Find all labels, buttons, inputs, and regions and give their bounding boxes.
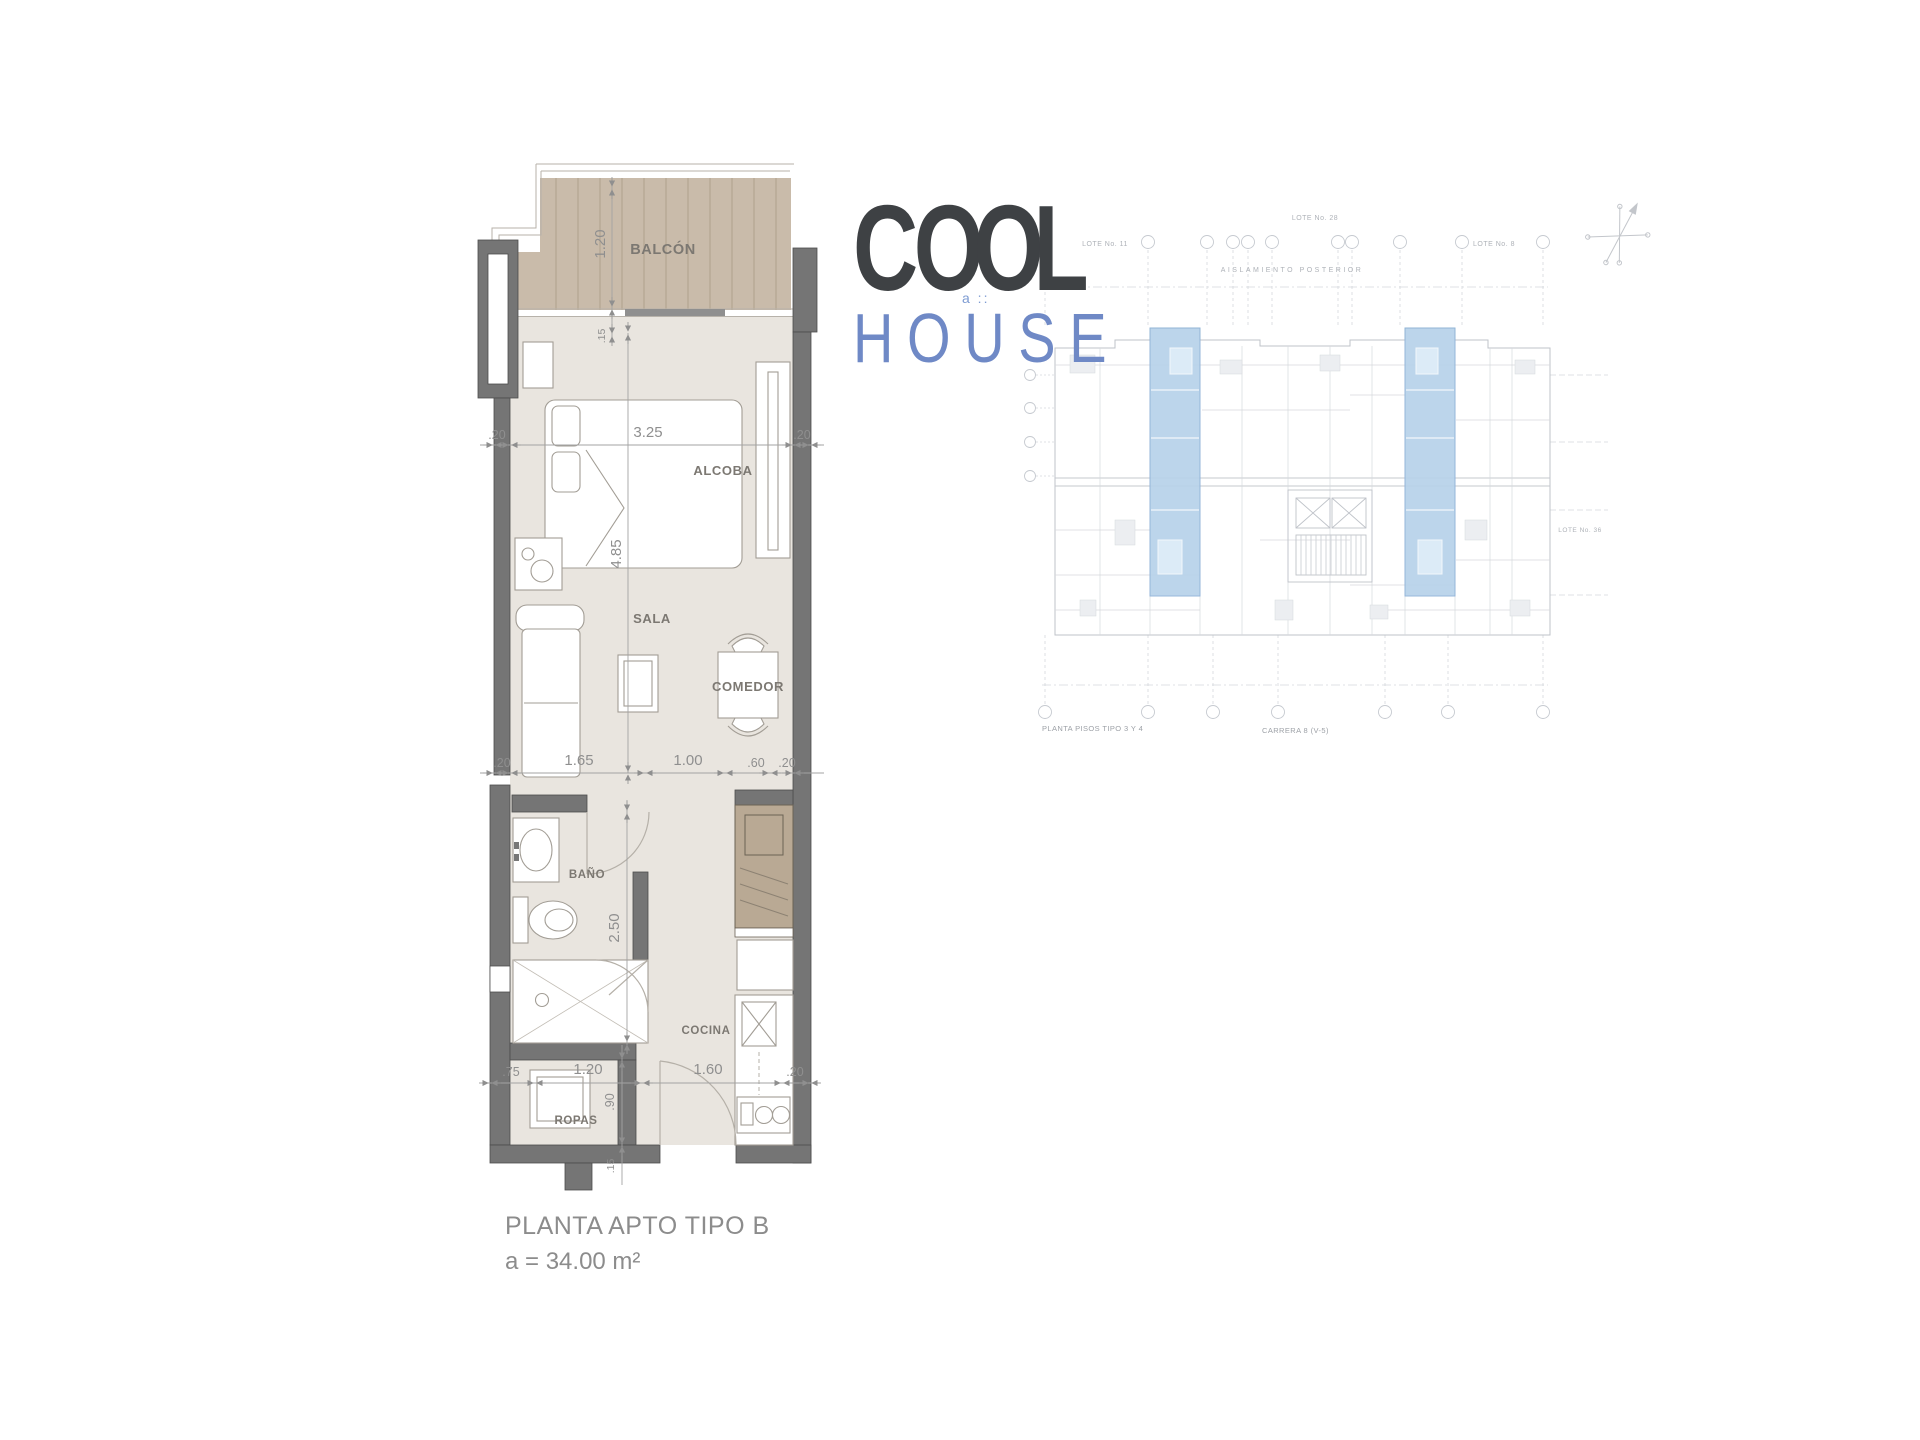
side-table-lamp — [515, 538, 562, 590]
north-compass-icon — [1578, 188, 1661, 276]
label-balcony: BALCÓN — [630, 240, 696, 258]
dim-entry-left: .75 — [502, 1065, 519, 1079]
shower — [513, 960, 648, 1043]
bathroom-vanity — [513, 818, 559, 882]
plan-caption: PLANTA APTO TIPO B a = 34.00 m² — [505, 1212, 770, 1276]
dim-length: 4.85 — [608, 539, 625, 568]
label-laundry: ROPAS — [554, 1115, 597, 1127]
refrigerator — [737, 940, 793, 990]
coffee-table — [618, 655, 658, 712]
dim-bedroom-left: .20 — [488, 428, 505, 442]
page: LOTE No. 11 LOTE No. 28 LOTE No. 8 AISLA… — [0, 0, 1920, 1440]
site-label-lote-east: LOTE No. 36 — [1558, 527, 1601, 534]
highlighted-unit — [1150, 328, 1200, 596]
site-label-lote-center: LOTE No. 28 — [1292, 215, 1338, 222]
dim-living-mid: 1.00 — [673, 752, 702, 769]
dim-bedroom-right: .20 — [793, 428, 810, 442]
site-label-rear-setback: AISLAMIENTO POSTERIOR — [1221, 267, 1364, 274]
label-dining: COMEDOR — [712, 679, 784, 694]
sliding-door — [518, 309, 793, 317]
dim-bedroom-width: 3.25 — [633, 424, 662, 441]
wardrobe — [756, 362, 790, 558]
dim-living-right: .20 — [778, 756, 795, 770]
plan-caption-area: a = 34.00 m² — [505, 1248, 770, 1276]
dim-balcony-depth: 1.20 — [592, 229, 609, 258]
dim-laundry-depth: .90 — [603, 1093, 617, 1110]
dim-living-window: .60 — [747, 756, 764, 770]
label-kitchen: COCINA — [682, 1025, 731, 1037]
site-caption-floor-type: PLANTA PISOS TIPO 3 Y 4 — [1042, 724, 1143, 733]
dim-entry-right: .20 — [786, 1065, 803, 1079]
dim-laundry-edge: .15 — [605, 1159, 617, 1174]
label-living: SALA — [633, 611, 671, 626]
dim-laundry-width: 1.20 — [573, 1061, 602, 1078]
dim-balcony-edge: .15 — [596, 329, 608, 344]
kitchen-closet — [735, 805, 793, 937]
label-bathroom: BAÑO — [569, 868, 605, 881]
site-label-lote-right: LOTE No. 8 — [1473, 241, 1515, 248]
dim-bath-length: 2.50 — [606, 913, 623, 942]
logo-wordmark-cool: COOLCOOL — [853, 198, 1075, 298]
plan-caption-title: PLANTA APTO TIPO B — [505, 1212, 770, 1241]
dim-living-sofa: 1.65 — [564, 752, 593, 769]
highlighted-unit — [1405, 328, 1455, 596]
balcony — [492, 164, 794, 317]
apartment-plan: .20 3.25 .20 .20 1.65 1.00 .60 .20 .75 1… — [390, 140, 840, 1260]
kitchen-counter — [735, 995, 793, 1145]
brand-logo: COOLCOOL a :: HOUSE — [853, 198, 1153, 370]
dim-living-left: .20 — [493, 756, 510, 770]
bedside-shelf — [523, 342, 553, 388]
label-bedroom: ALCOBA — [693, 463, 752, 478]
dim-entry-door: 1.60 — [693, 1061, 722, 1078]
logo-wordmark-house: HOUSE — [853, 306, 1093, 370]
site-caption-street: CARRERA 8 (V-5) — [1262, 726, 1329, 735]
building-footprint — [1055, 328, 1550, 635]
